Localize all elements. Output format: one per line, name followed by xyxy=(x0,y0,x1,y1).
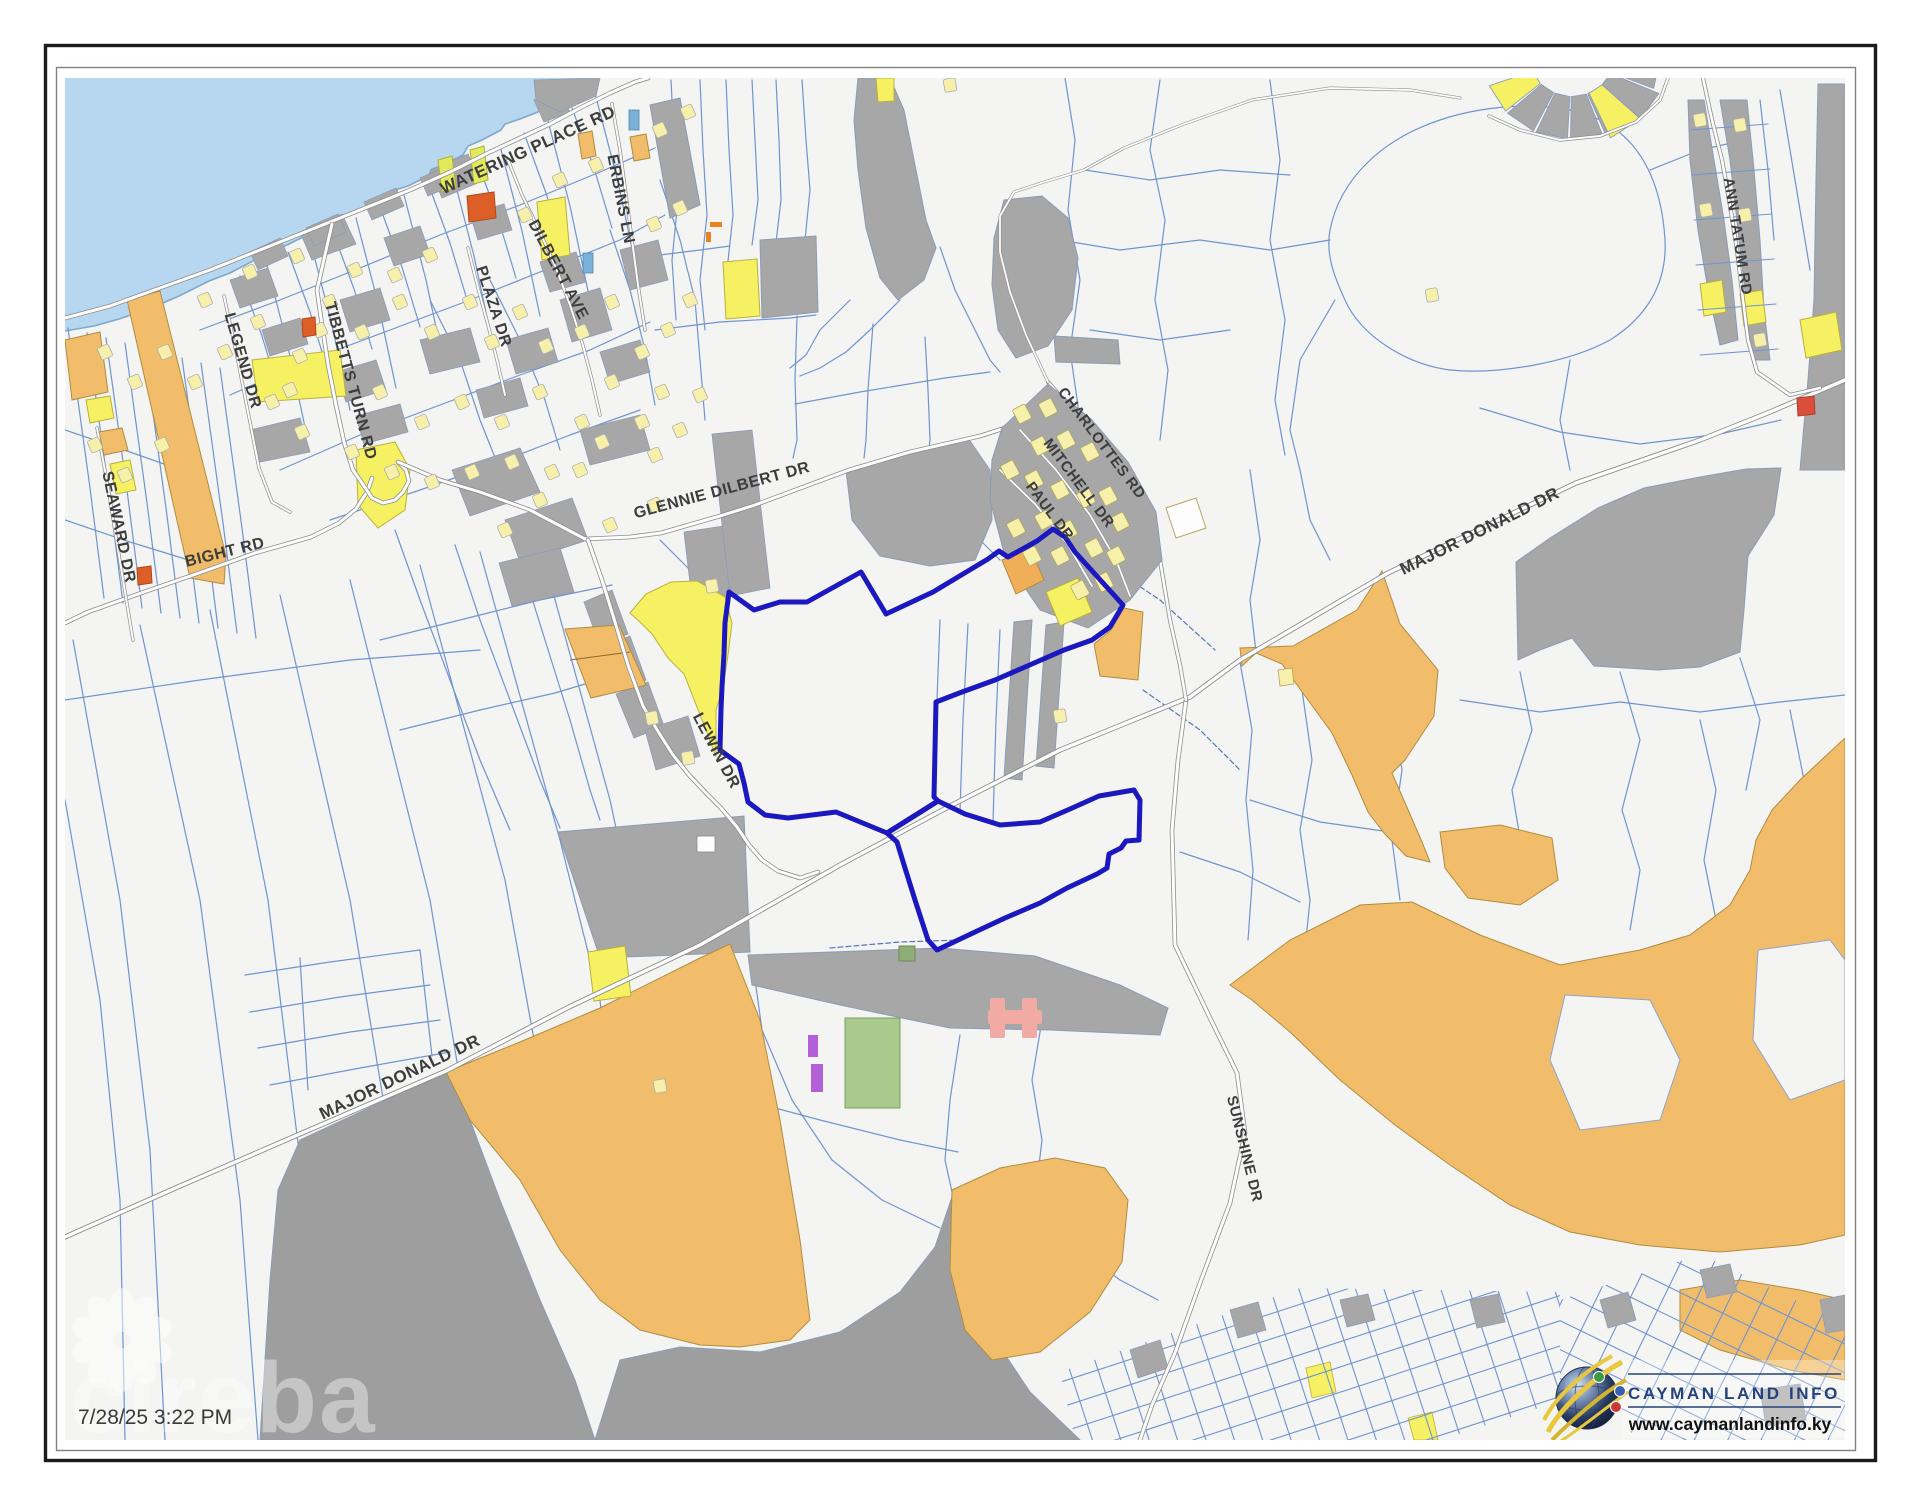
svg-text:cireba: cireba xyxy=(70,1342,377,1454)
svg-text:www.caymanlandinfo.ky: www.caymanlandinfo.ky xyxy=(1628,1414,1832,1434)
svg-text:CAYMAN LAND INFO: CAYMAN LAND INFO xyxy=(1628,1384,1840,1403)
svg-text:7/28/25 3:22 PM: 7/28/25 3:22 PM xyxy=(78,1406,232,1429)
